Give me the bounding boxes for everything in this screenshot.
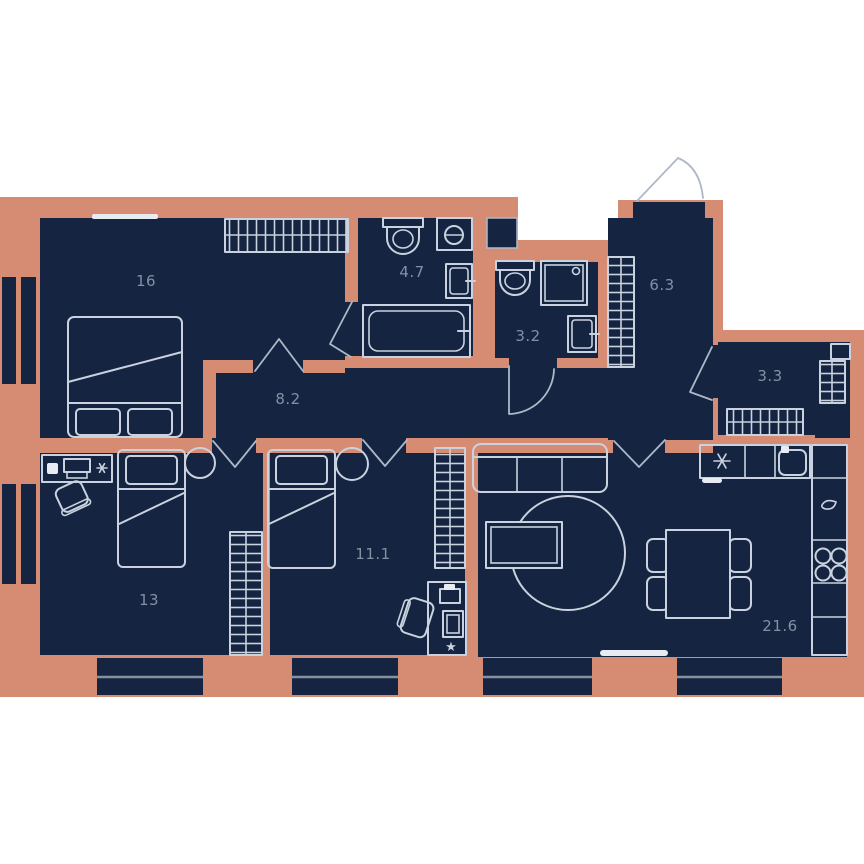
- star-decor: ★: [445, 640, 457, 655]
- wardrobe: [435, 448, 465, 568]
- dining-table: [666, 530, 730, 618]
- label-bedroom-2: 11.1: [355, 545, 390, 563]
- doorway-bathroom: [343, 302, 360, 356]
- wardrobe: [225, 219, 348, 252]
- entry-door-recess: [633, 202, 705, 218]
- balcony-threshold: [600, 650, 668, 656]
- water-heater: [831, 344, 850, 359]
- shelf: [820, 361, 845, 403]
- faucet: [781, 446, 789, 453]
- wardrobe: [230, 532, 262, 655]
- label-living-kitchen: 21.6: [762, 617, 797, 635]
- label-hallway: 6.3: [649, 276, 674, 294]
- floor-corridor: [210, 368, 630, 438]
- label-pantry: 3.3: [757, 367, 782, 385]
- plant: [47, 463, 58, 474]
- floor-wc: [495, 262, 600, 358]
- label-wc: 3.2: [515, 327, 540, 345]
- label-bathroom: 4.7: [399, 263, 424, 281]
- label-bedroom-3: 13: [139, 591, 159, 609]
- floor-shaft: [487, 218, 517, 248]
- label-corridor: 8.2: [275, 390, 300, 408]
- shoe-rack: [727, 409, 803, 435]
- window-bedroom-main: [92, 214, 158, 219]
- entry-door-swing: [637, 158, 703, 201]
- doorway-wc: [509, 356, 557, 370]
- floor-plan-canvas: ★ 16 4.7 3.2 6.3 3.3 8.2 11.1 13 21.6: [0, 0, 864, 864]
- hallway-wardrobe: [608, 257, 634, 367]
- counter-handle: [702, 478, 722, 483]
- floor-bathroom: [358, 218, 473, 356]
- doorway-pantry: [711, 345, 720, 398]
- label-bedroom-main: 16: [136, 272, 156, 290]
- doorway-bedroom-3: [212, 436, 256, 455]
- coffee-table: [486, 522, 562, 568]
- floor-plan-page: ★ 16 4.7 3.2 6.3 3.3 8.2 11.1 13 21.6: [0, 0, 864, 864]
